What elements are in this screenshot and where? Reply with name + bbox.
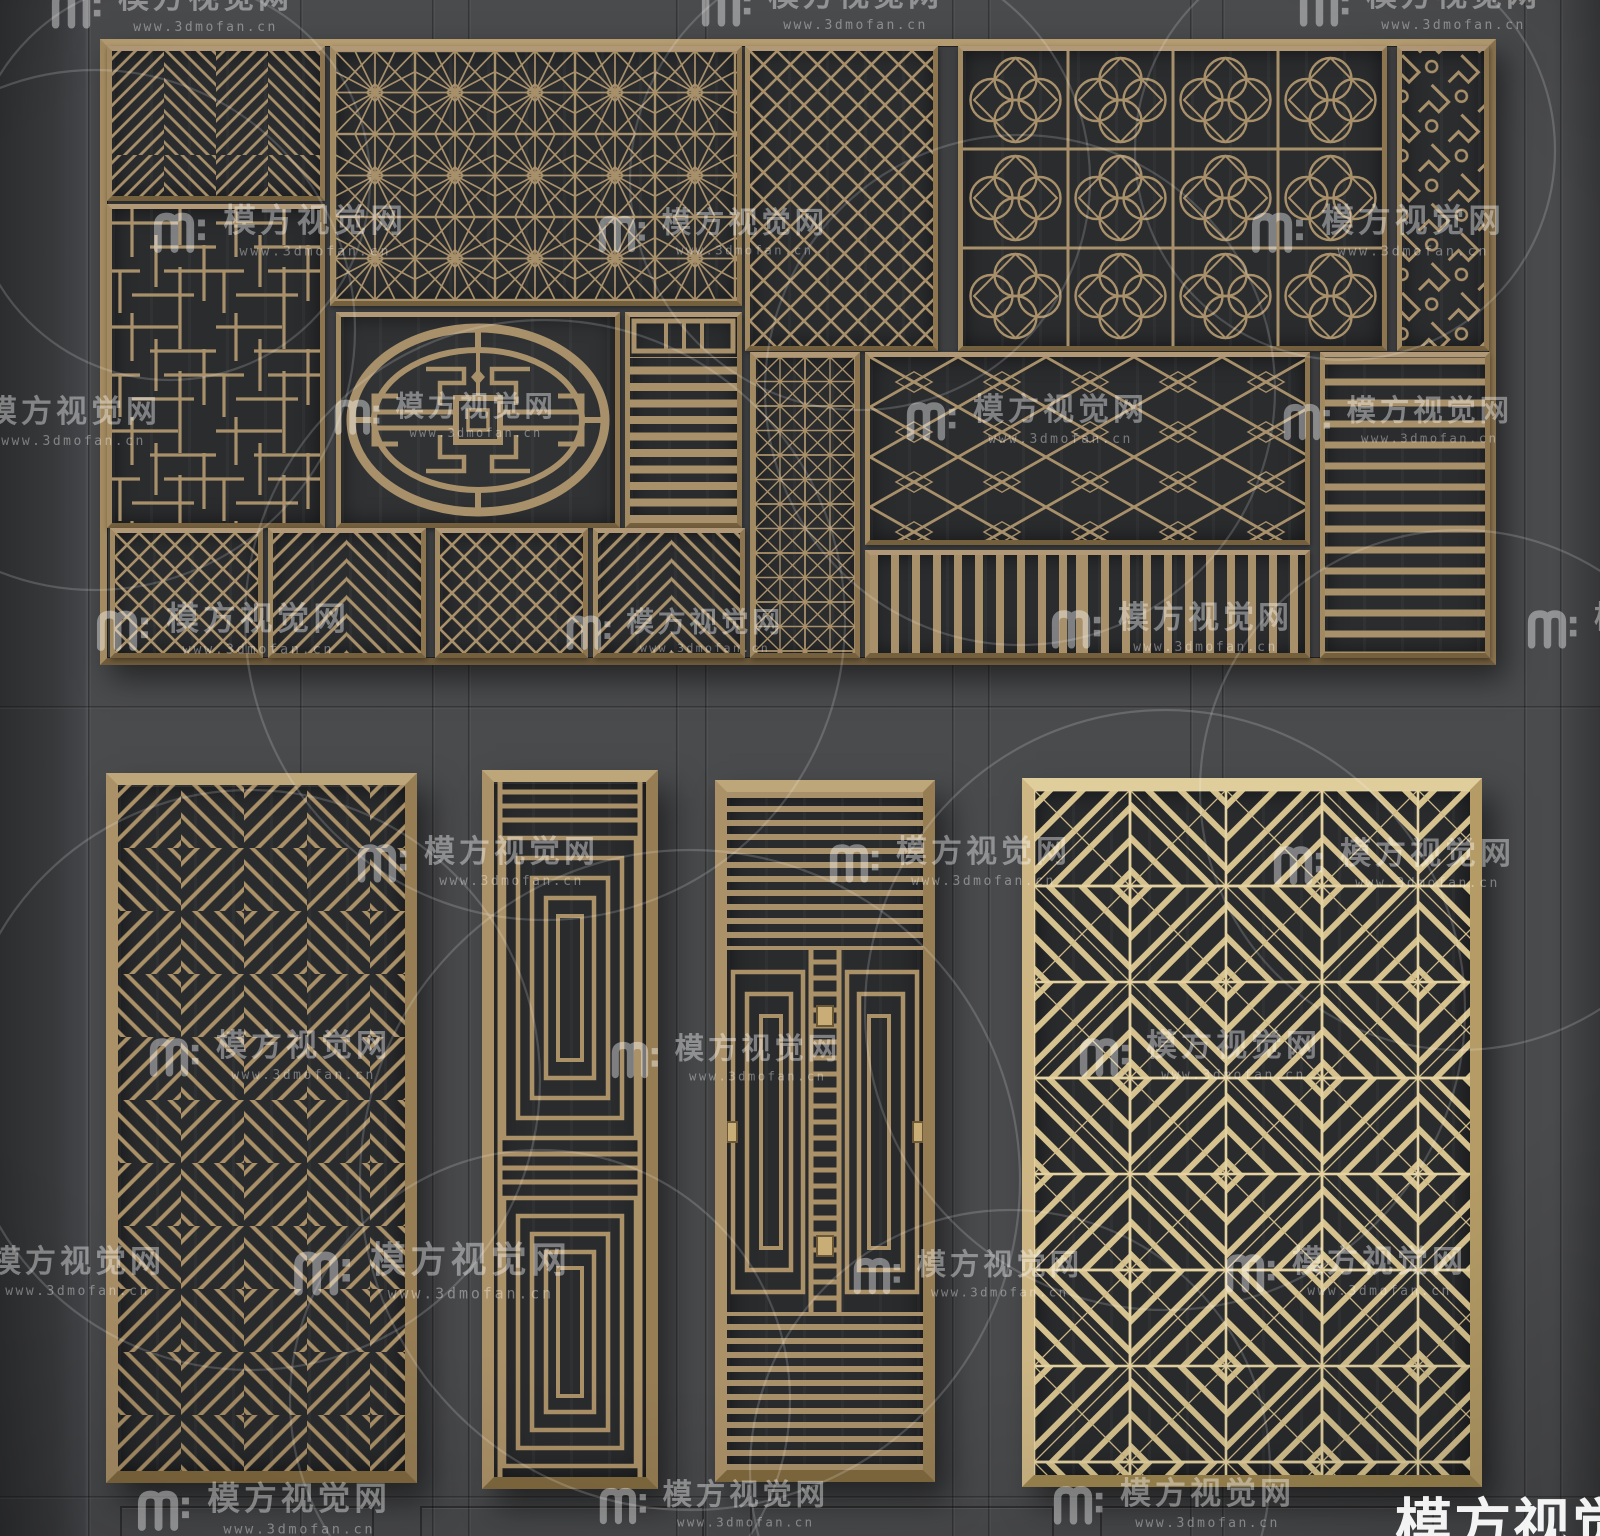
collage-panel-starburst	[330, 46, 742, 306]
watermark: 模方视觉网www.3dmofan.cn	[136, 1482, 391, 1536]
watermark-title: 模方视觉网	[396, 392, 557, 422]
watermark-text: 模方视觉网www.3dmofan.cn	[1340, 838, 1515, 891]
wall-groove	[0, 706, 1600, 709]
mf-logo-icon	[1526, 606, 1582, 650]
watermark-text: 模方视觉网www.3dmofan.cn	[1146, 1030, 1321, 1083]
watermark-title: 模方视觉网	[1118, 602, 1293, 635]
watermark-text: 模方视觉网www.3dmofan.cn	[675, 1034, 841, 1084]
diamond-cube-pattern	[870, 357, 1305, 540]
collage-panel-chevron-topleft	[107, 46, 325, 201]
watermark-text: 模方视觉网www.3dmofan.cn	[118, 0, 293, 35]
watermark: 模方视觉网www.3dmofan.cn	[0, 1246, 165, 1299]
watermark-url: www.3dmofan.cn	[396, 427, 557, 441]
watermark-title: 模方视觉网	[1366, 0, 1541, 13]
watermark-text: 模方视觉网www.3dmofan.cn	[1118, 602, 1293, 655]
wall-right-shade	[1552, 0, 1600, 1536]
watermark-url: www.3dmofan.cn	[1120, 1516, 1295, 1531]
watermark-url: www.3dmofan.cn	[1146, 1068, 1321, 1083]
watermark-title: 模方视觉网	[0, 396, 161, 429]
watermark-text: 模方视觉网www.3dmofan.cn	[973, 394, 1148, 447]
watermark: 模方视觉网www.3dmofan.cn	[50, 0, 293, 35]
watermark-text: 模方视觉网www.3dmofan.cn	[1321, 204, 1505, 259]
watermark-title: 模方视觉网	[370, 1242, 571, 1279]
watermark-url: www.3dmofan.cn	[675, 1070, 841, 1084]
watermark-title: 模方视觉网	[896, 836, 1071, 869]
watermark-url: www.3dmofan.cn	[1347, 432, 1513, 446]
watermark-text: 模方视觉网www.3dmofan.cn	[216, 1030, 391, 1083]
watermark-url: www.3dmofan.cn	[166, 641, 350, 657]
watermark-url: www.3dmofan.cn	[1118, 640, 1293, 655]
watermark-title: 模方视觉网	[1146, 1030, 1321, 1063]
fret-pattern	[1402, 51, 1484, 346]
watermark-url: www.3dmofan.cn	[207, 1521, 391, 1536]
watermark: 模方视觉网www.3dmofan.cn	[1250, 204, 1505, 259]
watermark: 模方视觉网www.3dmofan.cn	[905, 394, 1148, 447]
watermark-text: 模方视觉网www.3dmofan.cn	[1366, 0, 1541, 33]
watermark-url: www.3dmofan.cn	[663, 1516, 829, 1530]
mf-logo-icon	[700, 0, 756, 28]
watermark-text: 模方视觉网www.3dmofan.cn	[166, 602, 350, 657]
watermark-title: 模方视觉网	[207, 1482, 391, 1516]
watermark-text: 模方视觉网www.3dmofan.cn	[1292, 1246, 1467, 1299]
watermark-url: www.3dmofan.cn	[1292, 1284, 1467, 1299]
watermark-title: 模方视觉网	[1321, 204, 1505, 238]
watermark-url: www.3dmofan.cn	[917, 1286, 1083, 1300]
watermark: 模方视觉网www.3dmofan.cn	[356, 836, 599, 889]
watermark-title: 模方视觉网	[118, 0, 293, 15]
watermark-title: 模方视觉网	[1594, 602, 1600, 635]
watermark-text: 模方视觉网www.3dmofan.cn	[223, 204, 407, 259]
mf-logo-icon	[1052, 1482, 1108, 1526]
mf-logo-icon	[148, 1034, 204, 1078]
watermark-text: 模方视觉网www.3dmofan.cn	[662, 208, 828, 258]
watermark-url: www.3dmofan.cn	[216, 1068, 391, 1083]
quatrefoil-pattern	[963, 51, 1382, 346]
collage-panel-quatrefoil	[958, 46, 1387, 351]
watermark: 模方视觉网www.3dmofan.cn	[1052, 1478, 1295, 1531]
mf-logo-icon	[333, 396, 385, 436]
watermark-title: 模方视觉网	[626, 608, 784, 637]
watermark: 模方视觉网www.3dmofan.cn	[0, 396, 161, 449]
diagonal-parquet-pattern	[1034, 790, 1470, 1475]
crosshatch-pattern	[440, 533, 583, 653]
watermark-url: www.3dmofan.cn	[1594, 640, 1600, 655]
watermark: 模方视觉网www.3dmofan.cn	[292, 1242, 571, 1302]
chevron-pattern	[112, 51, 320, 196]
mf-logo-icon	[1250, 208, 1309, 254]
mf-logo-icon	[1078, 1034, 1134, 1078]
mf-logo-icon	[1298, 0, 1354, 28]
mf-logo-icon	[356, 840, 412, 884]
watermark: 模方视觉网www.3dmofan.cn	[1282, 396, 1513, 446]
watermark: 模方视觉网www.3dmofan.cn	[1224, 1246, 1467, 1299]
watermark-url: www.3dmofan.cn	[768, 18, 943, 33]
watermark-text: 模方视觉网www.3dmofan.cn	[1594, 602, 1600, 655]
mf-logo-icon	[292, 1247, 356, 1298]
mf-logo-icon	[1050, 606, 1106, 650]
watermark: 模方视觉网www.3dmofan.cn	[95, 602, 350, 657]
watermark-title: 模方视觉网	[1120, 1478, 1295, 1511]
watermark: 模方视觉网www.3dmofan.cn	[598, 1480, 829, 1530]
mf-logo-icon	[598, 1484, 651, 1526]
watermark-title: 模方视觉网	[223, 204, 407, 238]
watermark: 模方视觉网www.3dmofan.cn	[1526, 602, 1600, 655]
watermark: 模方视觉网www.3dmofan.cn	[1078, 1030, 1321, 1083]
watermark: 模方视觉网www.3dmofan.cn	[333, 392, 557, 440]
starburst-pattern	[335, 51, 737, 301]
watermark-text: 模方视觉网www.3dmofan.cn	[626, 608, 784, 655]
watermark-title: 模方视觉网	[424, 836, 599, 869]
watermark-title: 模方视觉网	[917, 1250, 1083, 1281]
watermark-url: www.3dmofan.cn	[1321, 243, 1505, 259]
mf-logo-icon	[1282, 400, 1335, 442]
watermark-url: www.3dmofan.cn	[662, 244, 828, 258]
watermark-text: 模方视觉网www.3dmofan.cn	[0, 1246, 165, 1299]
watermark-title: 模方视觉网	[768, 0, 943, 13]
watermark-title: 模方视觉网	[662, 208, 828, 239]
lattice-collage-frame	[100, 39, 1496, 665]
watermark-text: 模方视觉网www.3dmofan.cn	[396, 392, 557, 440]
crosshatch-pattern	[750, 51, 933, 346]
watermark-text: 模方视觉网www.3dmofan.cn	[768, 0, 943, 33]
watermark-url: www.3dmofan.cn	[973, 432, 1148, 447]
watermark-title: 模方视觉网	[166, 602, 350, 636]
watermark-text: 模方视觉网www.3dmofan.cn	[1120, 1478, 1295, 1531]
watermark: 模方视觉网www.3dmofan.cn	[148, 1030, 391, 1083]
watermark: 模方视觉网www.3dmofan.cn	[597, 208, 828, 258]
watermark: 模方视觉网www.3dmofan.cn	[610, 1034, 841, 1084]
watermark-text: 模方视觉网www.3dmofan.cn	[663, 1480, 829, 1530]
watermark-text: 模方视觉网www.3dmofan.cn	[1347, 396, 1513, 446]
watermark: 模方视觉网www.3dmofan.cn	[852, 1250, 1083, 1300]
brand-badge-text: 模方视觉网	[1395, 1493, 1600, 1536]
mf-logo-icon	[136, 1486, 195, 1532]
watermark-title: 模方视觉网	[973, 394, 1148, 427]
mf-logo-icon	[828, 840, 884, 884]
watermark: 模方视觉网www.3dmofan.cn	[152, 204, 407, 259]
watermark-url: www.3dmofan.cn	[1366, 18, 1541, 33]
watermark-url: www.3dmofan.cn	[626, 642, 784, 656]
mf-logo-icon	[610, 1038, 663, 1080]
watermark-title: 模方视觉网	[663, 1480, 829, 1511]
watermark-title: 模方视觉网	[216, 1030, 391, 1063]
watermark: 模方视觉网www.3dmofan.cn	[1298, 0, 1541, 33]
watermark: 模方视觉网www.3dmofan.cn	[1050, 602, 1293, 655]
hbars-pattern	[630, 317, 737, 523]
collage-panel-crosshatch	[745, 46, 938, 351]
showroom-wall-scene: 模方视觉网www.3dmofan.cn 模方视觉网www.3dmofan.cn …	[0, 0, 1600, 1536]
watermark-url: www.3dmofan.cn	[0, 434, 161, 449]
watermark-text: 模方视觉网www.3dmofan.cn	[917, 1250, 1083, 1300]
watermark-text: 模方视觉网www.3dmofan.cn	[370, 1242, 571, 1302]
watermark-text: 模方视觉网www.3dmofan.cn	[0, 396, 161, 449]
mf-logo-icon	[565, 612, 615, 652]
collage-panel-hbars-small	[625, 312, 742, 528]
watermark-title: 模方视觉网	[1347, 396, 1513, 427]
watermark-url: www.3dmofan.cn	[424, 874, 599, 889]
watermark-url: www.3dmofan.cn	[0, 1284, 165, 1299]
watermark: 模方视觉网www.3dmofan.cn	[565, 608, 784, 655]
watermark-url: www.3dmofan.cn	[896, 874, 1071, 889]
wall-groove	[1524, 0, 1527, 1536]
watermark-title: 模方视觉网	[1340, 838, 1515, 871]
watermark-text: 模方视觉网www.3dmofan.cn	[896, 836, 1071, 889]
watermark-url: www.3dmofan.cn	[118, 20, 293, 35]
mf-logo-icon	[95, 606, 154, 652]
watermark-url: www.3dmofan.cn	[223, 243, 407, 259]
brand-badge: 模方视觉网	[1395, 1480, 1600, 1536]
watermark: 模方视觉网www.3dmofan.cn	[700, 0, 943, 33]
mf-logo-icon	[905, 398, 961, 442]
mf-logo-icon	[1224, 1250, 1280, 1294]
mf-logo-icon	[852, 1254, 905, 1296]
mf-logo-icon	[597, 212, 650, 254]
wall-dark-left-strip	[0, 0, 88, 1536]
collage-panel-fret-maze	[1397, 46, 1489, 351]
watermark: 模方视觉网www.3dmofan.cn	[828, 836, 1071, 889]
watermark-title: 模方视觉网	[0, 1246, 165, 1279]
mf-logo-icon	[50, 0, 106, 30]
watermark-url: www.3dmofan.cn	[1340, 876, 1515, 891]
watermark-text: 模方视觉网www.3dmofan.cn	[424, 836, 599, 889]
wall-groove	[88, 0, 91, 1536]
watermark-title: 模方视觉网	[1292, 1246, 1467, 1279]
mf-logo-icon	[1272, 842, 1328, 886]
mf-logo-icon	[152, 208, 211, 254]
watermark-url: www.3dmofan.cn	[370, 1285, 571, 1302]
slats-studs-pattern	[727, 792, 923, 1470]
watermark: 模方视觉网www.3dmofan.cn	[1272, 838, 1515, 891]
watermark-text: 模方视觉网www.3dmofan.cn	[207, 1482, 391, 1536]
watermark-title: 模方视觉网	[675, 1034, 841, 1065]
collage-panel-diamond-cube	[865, 352, 1310, 545]
